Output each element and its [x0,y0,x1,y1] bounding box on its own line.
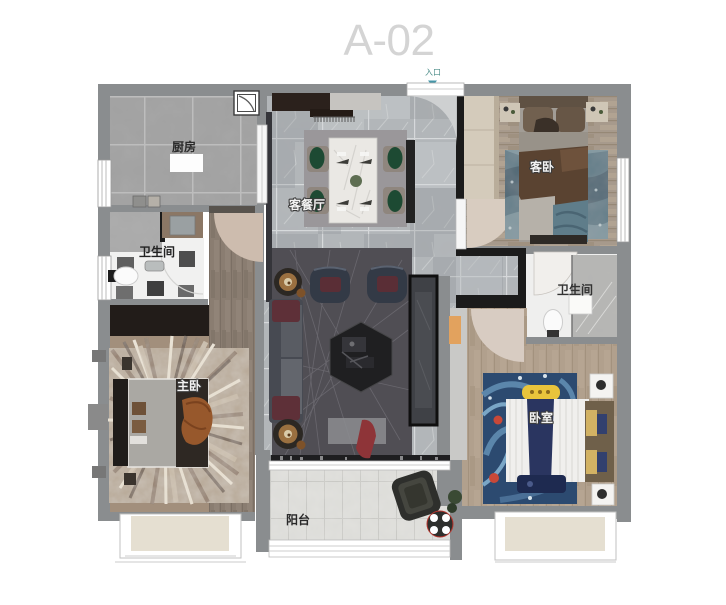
svg-text:卧室: 卧室 [529,410,553,425]
svg-text:主卧: 主卧 [177,378,201,393]
svg-text:A-02: A-02 [344,16,435,65]
svg-text:厨房: 厨房 [172,139,196,154]
svg-text:客餐厅: 客餐厅 [288,197,325,212]
svg-text:客卧: 客卧 [529,159,554,174]
svg-text:卫生间: 卫生间 [139,244,175,259]
svg-text:入口: 入口 [425,68,441,77]
svg-text:阳台: 阳台 [286,512,310,527]
svg-text:卫生间: 卫生间 [557,282,593,297]
